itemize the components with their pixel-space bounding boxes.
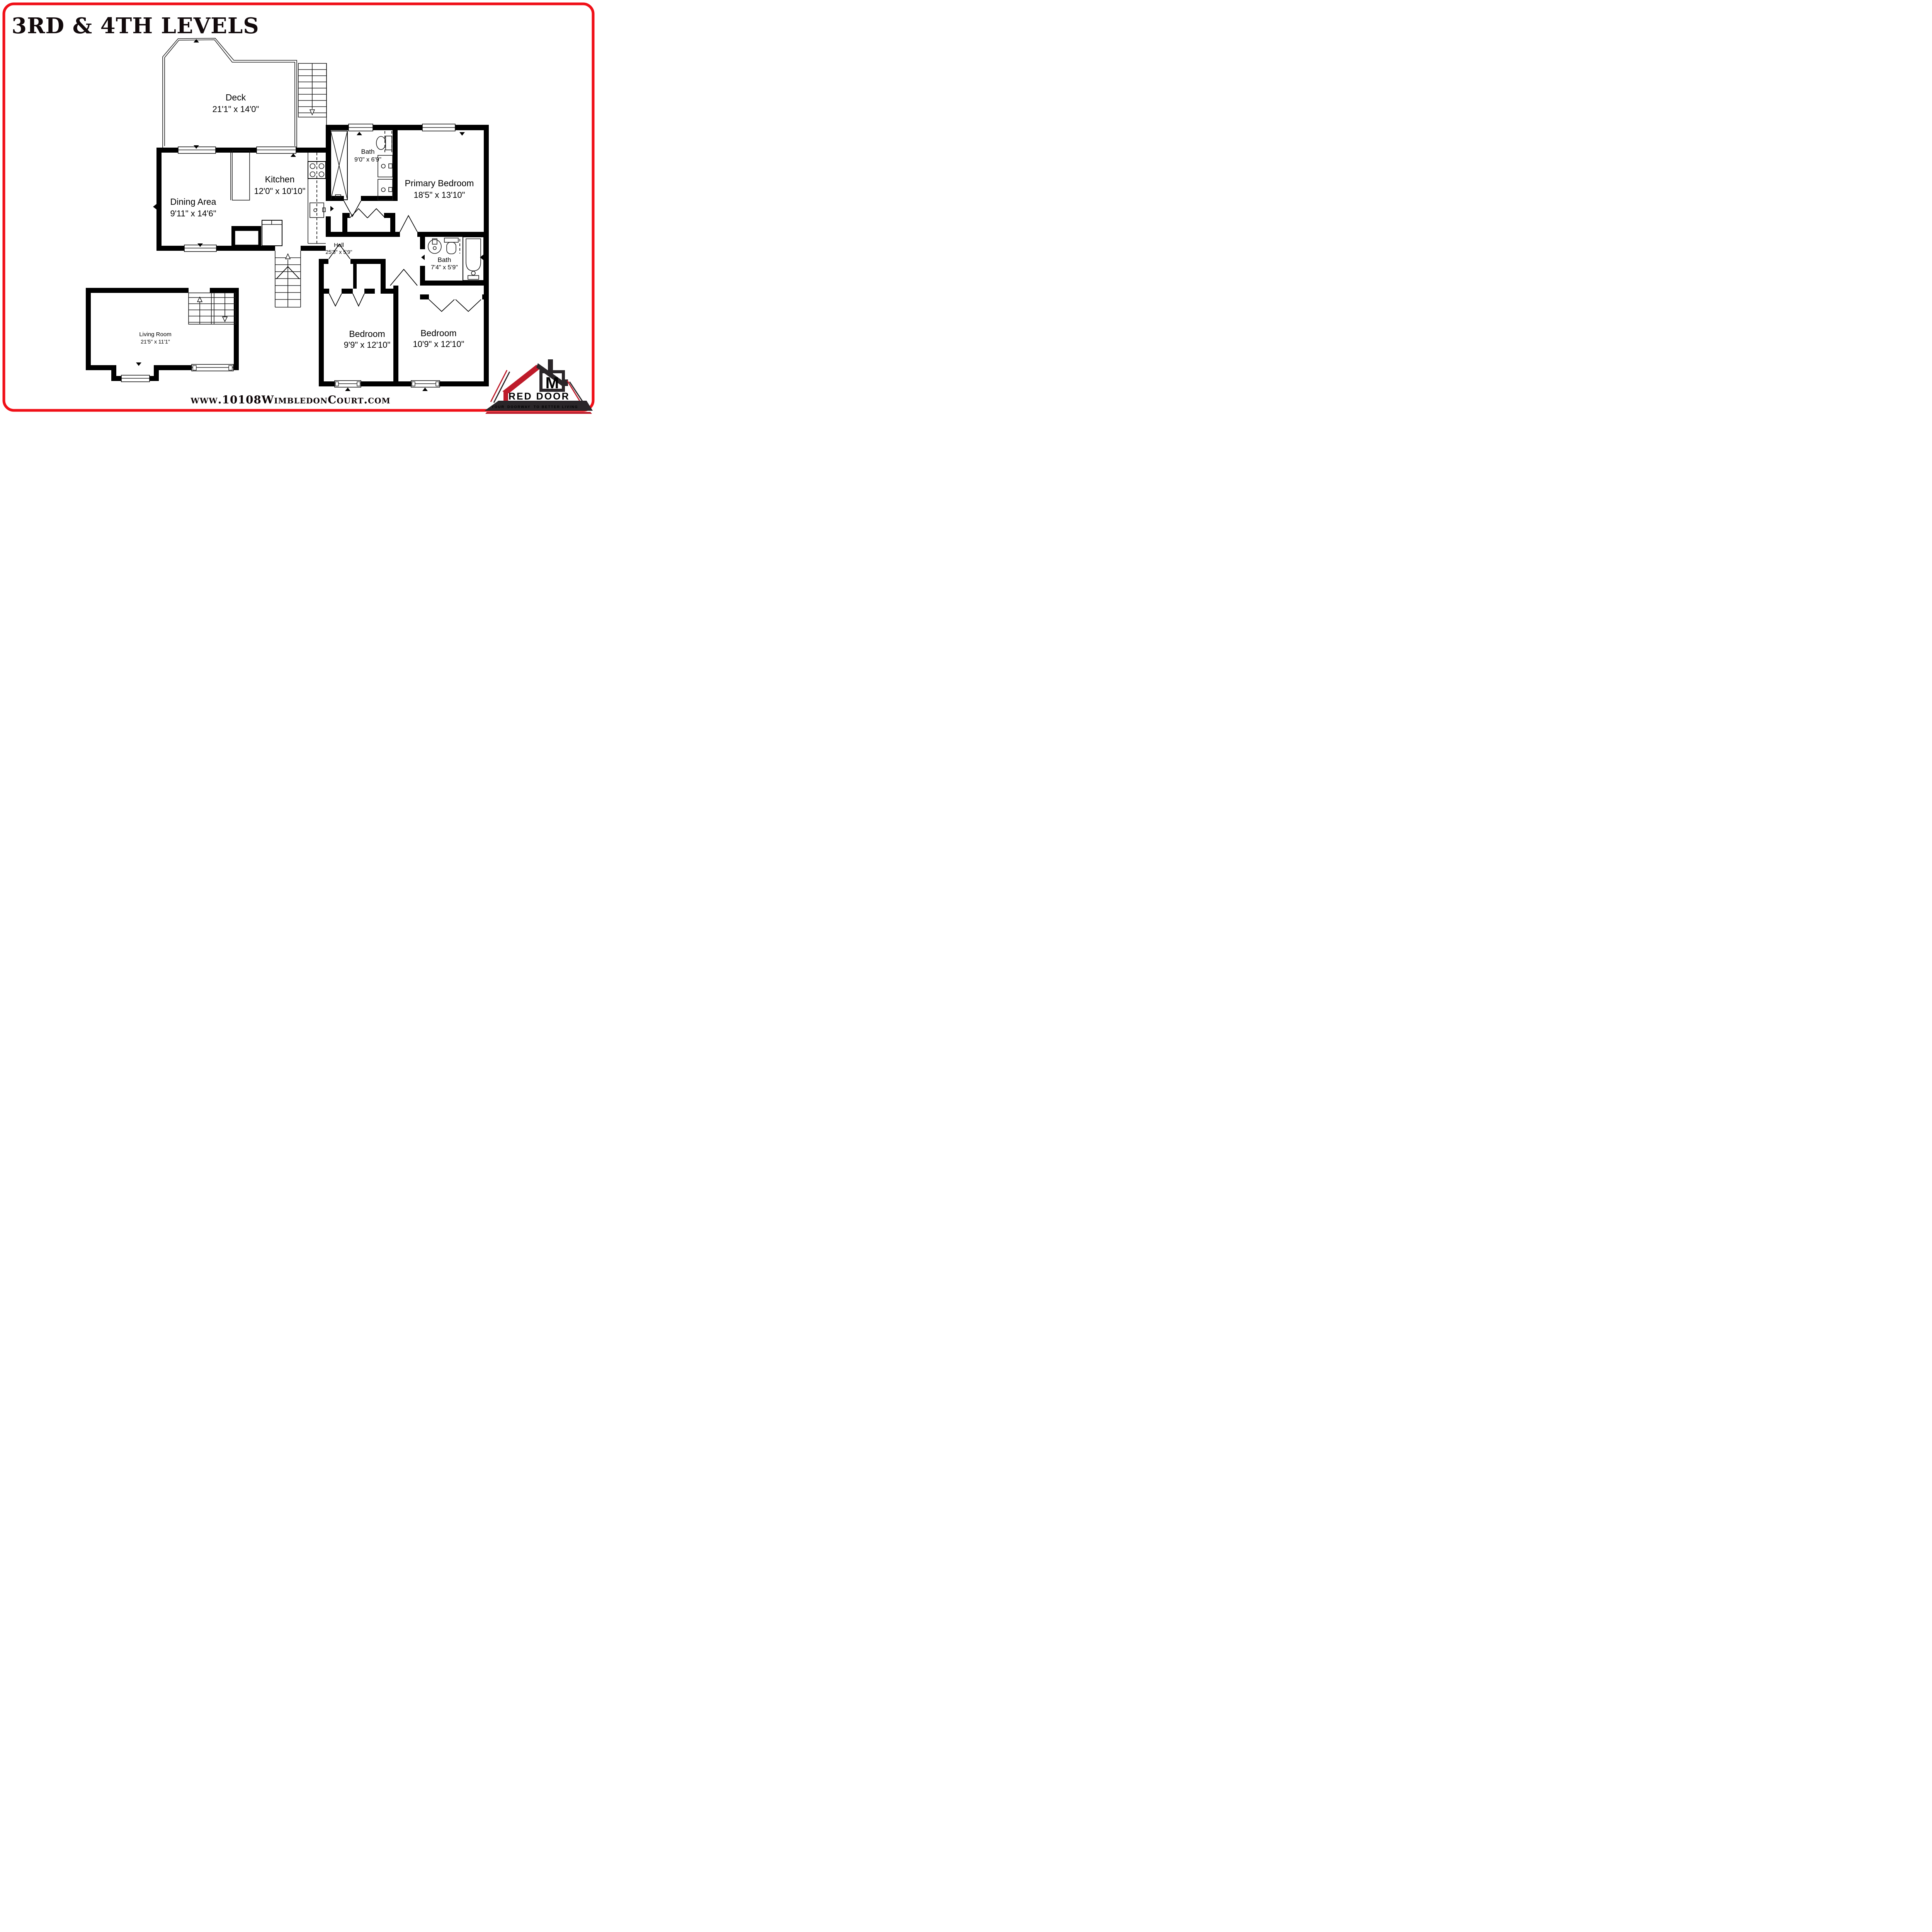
logo-monogram: M xyxy=(546,374,559,392)
toilet-icon xyxy=(444,238,460,254)
logo-tagline-underline xyxy=(485,412,592,414)
stairs-up-arrow-icon xyxy=(286,254,290,259)
closet-door xyxy=(456,299,481,311)
kitchen-fixtures xyxy=(231,150,326,251)
room-dims-bath-upper: 9'0" x 6'9" xyxy=(354,156,381,163)
room-dims-bedroom-left: 9'9" x 12'10" xyxy=(344,340,391,350)
room-dims-bath-lower: 7'4" x 5'9" xyxy=(431,264,458,271)
deck-staircase xyxy=(298,63,327,125)
logo-tagline-3: TO BETTER LIVING xyxy=(534,405,578,409)
floor-plan-canvas: 3RD & 4TH LEVELS xyxy=(0,0,597,414)
door-swings xyxy=(329,201,481,311)
logo-swoosh-right-dark xyxy=(570,382,582,401)
living-room-staircase xyxy=(189,293,236,324)
kitchen-island xyxy=(231,226,261,251)
floor-plan-page: 3RD & 4TH LEVELS xyxy=(0,0,597,414)
room-label-bath-lower: Bath xyxy=(438,256,451,264)
pantry-cabinet xyxy=(231,150,250,200)
room-label-kitchen: Kitchen xyxy=(265,174,295,184)
website-url: www.10108WimbledonCourt.com xyxy=(190,393,390,406)
pedestal-sink-icon xyxy=(428,239,441,253)
room-dims-living-room: 21'5" x 11'1" xyxy=(141,338,170,345)
refrigerator-icon xyxy=(262,220,282,246)
door-swing xyxy=(400,216,417,232)
logo-tagline-2: DOORWAY xyxy=(507,405,531,409)
closet-door xyxy=(429,299,454,311)
red-door-metro-logo: M R ED DOOR METRO YOUR DOORWAY TO BETTER… xyxy=(485,359,593,414)
room-label-hall: Hall xyxy=(334,242,344,248)
logo-door-stub xyxy=(563,379,568,386)
room-label-dining-area: Dining Area xyxy=(170,197,216,207)
room-label-deck: Deck xyxy=(226,92,246,102)
logo-roof-red xyxy=(502,365,541,393)
logo-tagline-1: YOUR xyxy=(492,405,505,409)
closet-bifold-door xyxy=(367,209,385,218)
room-label-bedroom-right: Bedroom xyxy=(420,328,456,338)
bath-upper-fixtures xyxy=(331,131,393,200)
toilet-icon xyxy=(376,131,392,154)
room-label-primary-bedroom: Primary Bedroom xyxy=(405,178,474,188)
page-title: 3RD & 4TH LEVELS xyxy=(12,13,259,39)
door-swing xyxy=(390,269,417,286)
windows xyxy=(116,124,455,387)
logo-brand-initial: R xyxy=(509,391,517,402)
room-dims-hall: 25'3" x 5'9" xyxy=(326,249,352,255)
room-dims-primary-bedroom: 18'5" x 13'10" xyxy=(414,190,465,200)
room-dims-dining-area: 9'11" x 14'6" xyxy=(170,209,216,218)
shower-icon xyxy=(331,131,347,200)
room-label-bedroom-left: Bedroom xyxy=(349,329,385,339)
room-dims-bedroom-right: 10'9" x 12'10" xyxy=(413,339,464,349)
stairs-down-arrow-icon xyxy=(223,317,227,321)
middle-staircase xyxy=(275,251,301,307)
closet-door xyxy=(353,294,364,306)
bathtub-icon xyxy=(463,237,484,281)
room-label-living-room: Living Room xyxy=(139,331,171,338)
logo-brand-rest: ED DOOR xyxy=(517,391,570,402)
stairs-down-arrow-icon xyxy=(310,110,315,115)
closet-door xyxy=(329,294,342,306)
kitchen-sink-icon xyxy=(310,203,325,218)
room-dims-deck: 21'1" x 14'0" xyxy=(213,104,259,114)
room-dims-kitchen: 12'0" x 10'10" xyxy=(254,186,306,196)
bath-lower-fixtures xyxy=(428,237,484,281)
room-label-bath-upper: Bath xyxy=(361,148,375,155)
